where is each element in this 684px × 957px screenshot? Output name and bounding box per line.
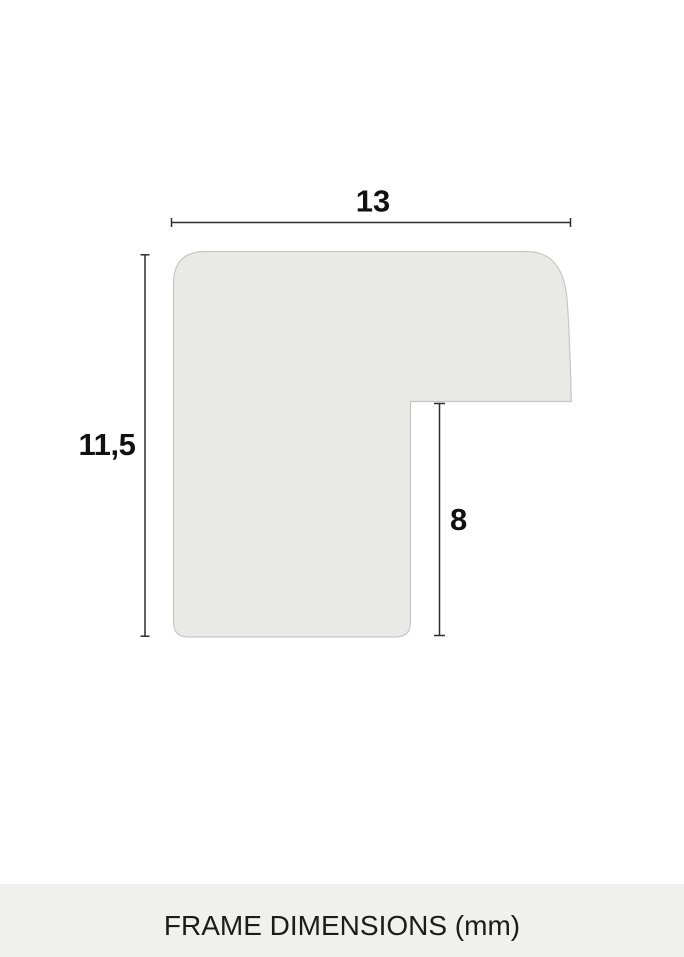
svg-text:13: 13 [356,184,390,219]
svg-text:11,5: 11,5 [78,427,135,462]
svg-text:8: 8 [450,502,467,537]
